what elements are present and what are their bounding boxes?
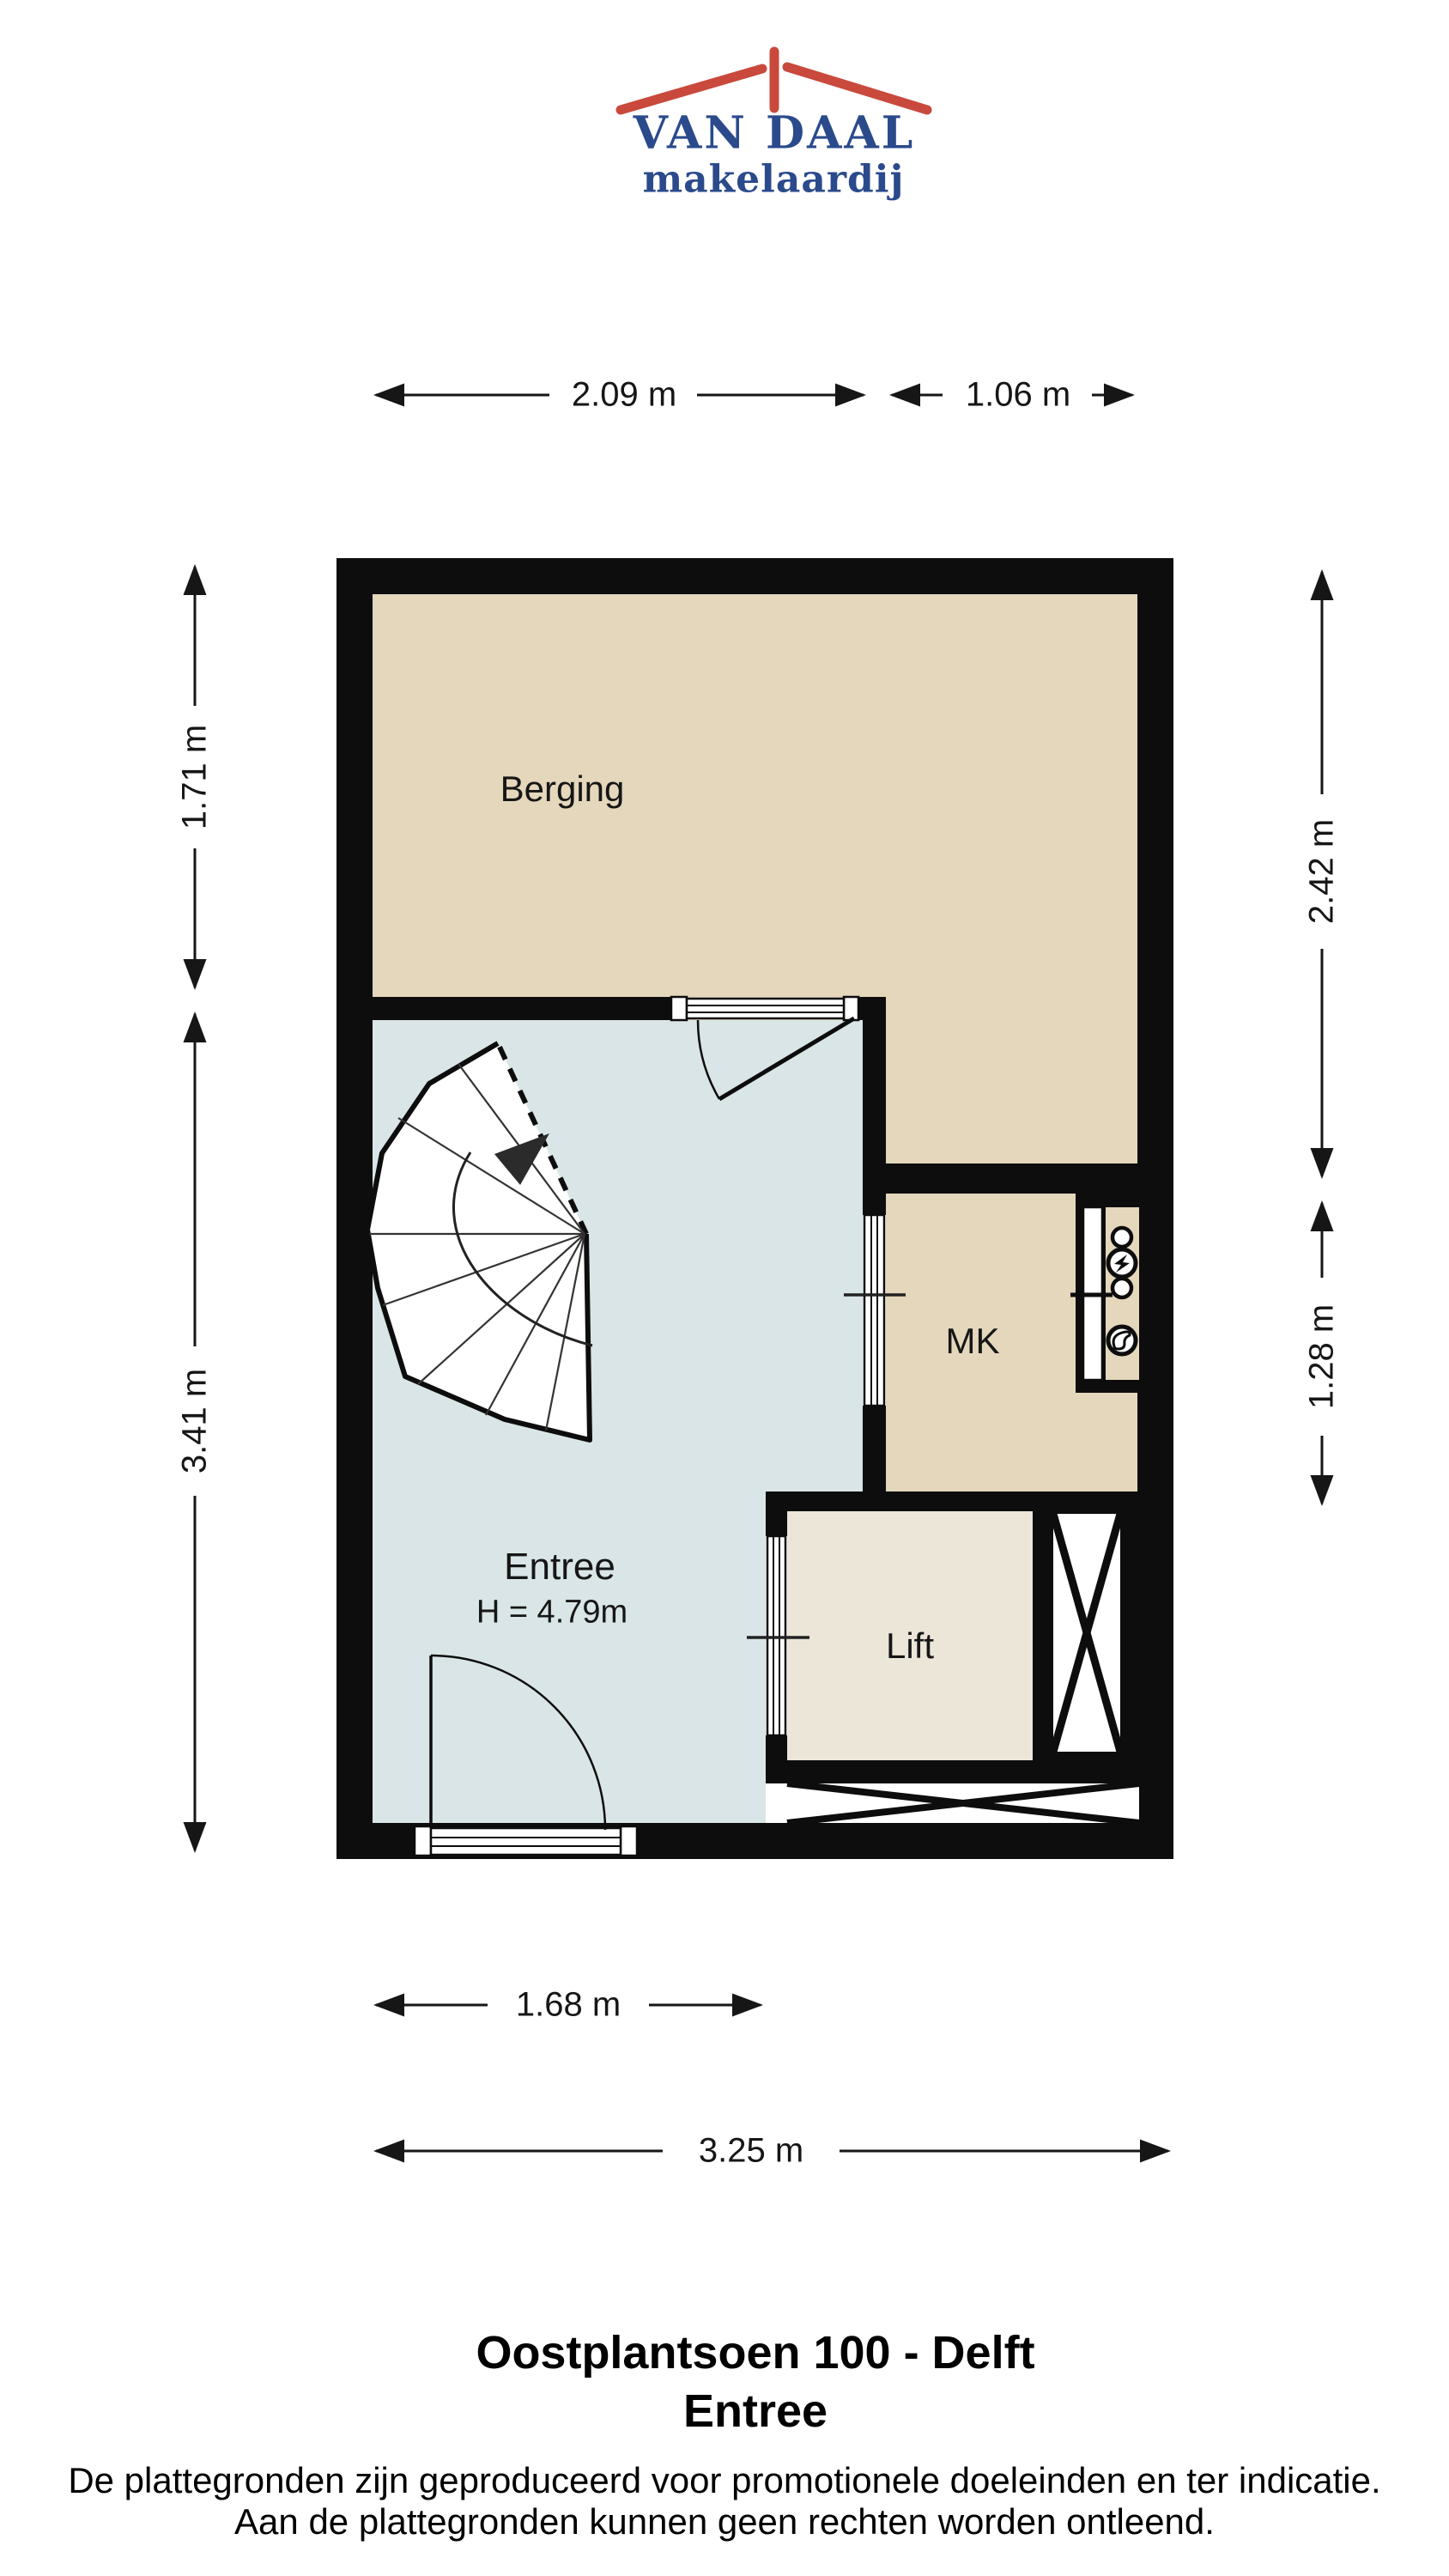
room-label-lift: Lift: [886, 1625, 934, 1667]
dim-right-upper: 2.42 m: [1303, 819, 1342, 924]
room-label-mk: MK: [946, 1321, 1000, 1362]
dim-right-lower: 1.28 m: [1303, 1304, 1342, 1409]
meter-dial-icon: [1113, 1279, 1131, 1297]
lift-shaft: [1053, 1514, 1120, 1752]
dim-left-upper: 1.71 m: [176, 725, 215, 829]
floorplan-page: VAN DAAL makelaardij: [0, 0, 1449, 2576]
wall-mk-top: [863, 1163, 1173, 1194]
room-label-entree: Entree: [504, 1546, 615, 1589]
void-hatch: [787, 1783, 1139, 1823]
room-label-berging: Berging: [500, 769, 625, 810]
dim-bottom-outer: 3.25 m: [699, 2132, 803, 2171]
disclaimer-line-1: De plattegronden zijn geproduceerd voor …: [68, 2460, 1380, 2501]
dim-top-right: 1.06 m: [966, 376, 1070, 415]
wall-lift-bottom: [766, 1760, 1173, 1783]
dim-top-left: 2.09 m: [572, 376, 676, 415]
meter-dial-icon: [1113, 1228, 1131, 1247]
dim-bottom-inner: 1.68 m: [516, 1986, 621, 2025]
disclaimer-line-2: Aan de plattegronden kunnen geen rechten…: [234, 2501, 1215, 2543]
dim-left-lower: 3.41 m: [176, 1369, 215, 1473]
floorplan-drawing: [0, 0, 1449, 2576]
room-label-entree-height: H = 4.79m: [476, 1595, 627, 1631]
page-subtitle: Entree: [683, 2385, 828, 2438]
wall-berging-entree: [336, 997, 671, 1020]
page-title: Oostplantsoen 100 - Delft: [476, 2326, 1034, 2379]
